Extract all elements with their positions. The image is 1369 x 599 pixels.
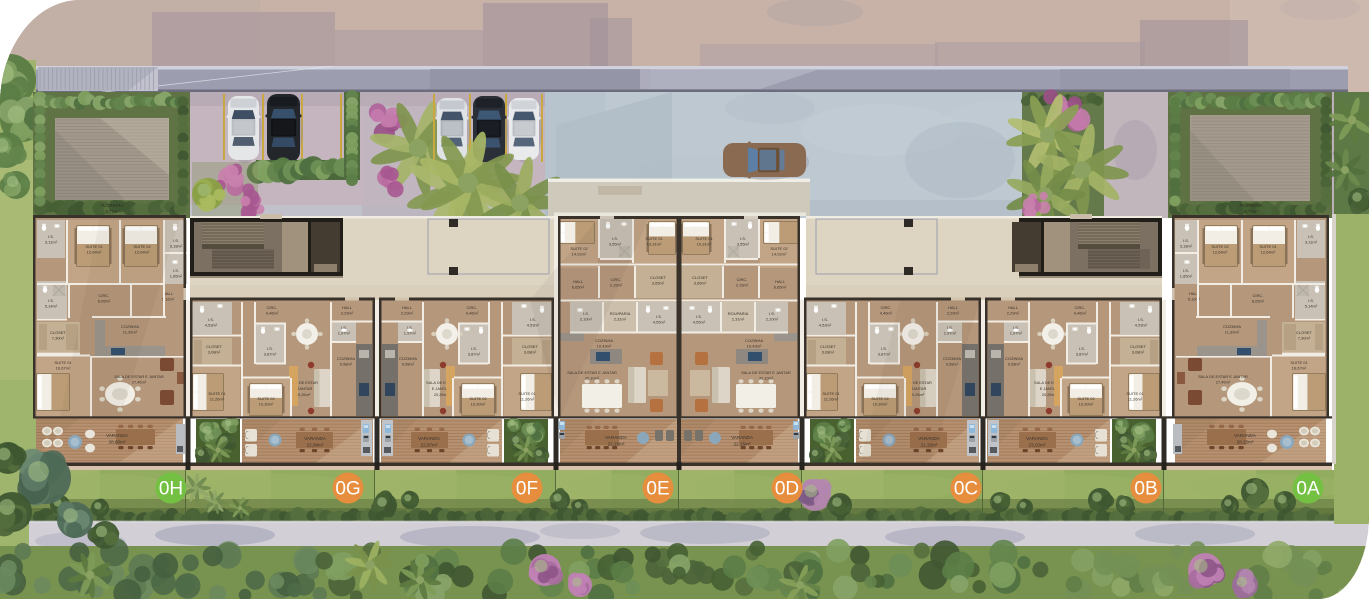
svg-text:CIRC.: CIRC. xyxy=(1253,293,1264,298)
svg-text:0E: 0E xyxy=(646,479,669,500)
svg-text:3,65m²: 3,65m² xyxy=(694,280,707,285)
svg-text:I.S.: I.S. xyxy=(267,346,273,351)
svg-text:10,43m²: 10,43m² xyxy=(747,343,762,348)
svg-text:9,58m²: 9,58m² xyxy=(340,361,353,366)
svg-text:11,39m²: 11,39m² xyxy=(1225,329,1240,334)
svg-text:SUITE 02: SUITE 02 xyxy=(1211,244,1229,249)
svg-text:I.S.: I.S. xyxy=(1079,346,1085,351)
svg-text:1,97m²: 1,97m² xyxy=(338,330,351,335)
svg-text:CIRC.: CIRC. xyxy=(881,305,892,310)
svg-text:VARANDA: VARANDA xyxy=(304,436,327,441)
svg-text:0A: 0A xyxy=(1296,479,1320,500)
svg-text:I.S.: I.S. xyxy=(740,236,746,241)
svg-text:3,87m²: 3,87m² xyxy=(468,351,481,356)
svg-text:16,67m²: 16,67m² xyxy=(56,365,71,370)
svg-text:I.S.: I.S. xyxy=(208,317,214,322)
svg-text:8,77m²: 8,77m² xyxy=(105,209,119,214)
svg-text:1,97m²: 1,97m² xyxy=(404,330,417,335)
svg-text:SUITE 01: SUITE 01 xyxy=(1259,244,1277,249)
svg-text:4,46m²: 4,46m² xyxy=(466,311,479,316)
svg-text:I.S.: I.S. xyxy=(1308,298,1314,303)
svg-text:0G: 0G xyxy=(335,479,360,500)
svg-text:SUITE 02: SUITE 02 xyxy=(257,396,275,401)
svg-text:I.S.: I.S. xyxy=(881,346,887,351)
svg-text:10,31m²: 10,31m² xyxy=(647,241,662,246)
svg-text:2,10m²: 2,10m² xyxy=(766,316,779,321)
svg-text:VARANDA: VARANDA xyxy=(1026,436,1049,441)
svg-text:HALL: HALL xyxy=(402,305,413,310)
svg-text:VARANDA: VARANDA xyxy=(1234,433,1257,438)
svg-text:CLOSET: CLOSET xyxy=(522,344,539,349)
svg-text:4,55m²: 4,55m² xyxy=(653,319,666,324)
svg-text:28,60m²: 28,60m² xyxy=(109,440,126,445)
svg-text:SUITE 01: SUITE 01 xyxy=(822,391,840,396)
svg-text:COZINHA: COZINHA xyxy=(745,338,763,343)
svg-text:CIRC.: CIRC. xyxy=(467,305,478,310)
svg-text:HALL: HALL xyxy=(342,305,353,310)
svg-text:4,53m²: 4,53m² xyxy=(205,322,218,327)
svg-text:4,46m²: 4,46m² xyxy=(880,311,893,316)
svg-text:2,15m²: 2,15m² xyxy=(736,282,749,287)
svg-text:4,53m²: 4,53m² xyxy=(819,322,832,327)
svg-text:27,45m²: 27,45m² xyxy=(132,380,147,385)
svg-text:VARANDA: VARANDA xyxy=(605,435,628,440)
svg-text:10,31m²: 10,31m² xyxy=(697,241,712,246)
svg-text:I.S.: I.S. xyxy=(1138,317,1144,322)
svg-text:SUITE 01: SUITE 01 xyxy=(54,360,72,365)
svg-text:ROUPARIA: ROUPARIA xyxy=(610,311,631,316)
svg-text:COZINHA: COZINHA xyxy=(399,356,417,361)
svg-text:I.S.: I.S. xyxy=(48,234,54,239)
svg-text:3,08m²: 3,08m² xyxy=(208,349,221,354)
svg-text:I.S.: I.S. xyxy=(471,346,477,351)
svg-text:VARANDA: VARANDA xyxy=(106,433,129,438)
svg-text:4,53m²: 4,53m² xyxy=(1135,322,1148,327)
svg-text:SUITE 02: SUITE 02 xyxy=(1077,396,1095,401)
svg-text:8,05m²: 8,05m² xyxy=(1252,298,1265,303)
svg-text:SUITE 02: SUITE 02 xyxy=(770,246,788,251)
svg-text:I.S.: I.S. xyxy=(656,314,662,319)
svg-text:CLOSET: CLOSET xyxy=(1296,330,1313,335)
svg-text:I.S.: I.S. xyxy=(769,311,775,316)
svg-text:SALA DE ESTAR E JANTAR: SALA DE ESTAR E JANTAR xyxy=(741,370,791,375)
svg-text:2,29m²: 2,29m² xyxy=(401,311,414,316)
svg-text:3,55m²: 3,55m² xyxy=(737,241,750,246)
svg-text:CLOSET: CLOSET xyxy=(1130,344,1147,349)
svg-text:COZINHA: COZINHA xyxy=(337,356,355,361)
svg-text:5,14m²: 5,14m² xyxy=(45,303,58,308)
svg-text:22,98m²: 22,98m² xyxy=(307,443,324,448)
svg-text:3,18m²: 3,18m² xyxy=(1180,243,1193,248)
svg-text:CIRC.: CIRC. xyxy=(737,277,748,282)
svg-text:3,11m²: 3,11m² xyxy=(45,239,58,244)
svg-text:4,46m²: 4,46m² xyxy=(266,311,279,316)
svg-text:3,11m²: 3,11m² xyxy=(1305,239,1318,244)
svg-text:3,08m²: 3,08m² xyxy=(1132,349,1145,354)
svg-text:I.S.: I.S. xyxy=(1183,268,1189,273)
svg-text:I.S.: I.S. xyxy=(48,298,54,303)
svg-text:COZINHA: COZINHA xyxy=(1223,324,1241,329)
svg-text:I.S.: I.S. xyxy=(173,238,179,243)
svg-text:I.S.: I.S. xyxy=(696,314,702,319)
svg-text:I.S.: I.S. xyxy=(341,325,347,330)
svg-text:I.S.: I.S. xyxy=(173,268,179,273)
svg-text:2,31m²: 2,31m² xyxy=(614,316,627,321)
svg-text:9,58m²: 9,58m² xyxy=(402,361,415,366)
svg-text:11,26m²: 11,26m² xyxy=(824,396,839,401)
svg-text:10,30m²: 10,30m² xyxy=(259,401,274,406)
svg-text:2,29m²: 2,29m² xyxy=(341,311,354,316)
svg-text:COZINHA: COZINHA xyxy=(1005,356,1023,361)
svg-text:0F: 0F xyxy=(516,479,538,500)
svg-text:1,85m²: 1,85m² xyxy=(170,273,183,278)
svg-text:CLOSET: CLOSET xyxy=(650,275,667,280)
svg-text:I.S.: I.S. xyxy=(407,325,413,330)
svg-text:CLOSET: CLOSET xyxy=(820,344,837,349)
svg-text:VARANDA: VARANDA xyxy=(418,436,441,441)
svg-text:23,02m²: 23,02m² xyxy=(1029,443,1046,448)
svg-text:1,85m²: 1,85m² xyxy=(1180,273,1193,278)
svg-text:I.S.: I.S. xyxy=(1013,325,1019,330)
svg-text:11,26m²: 11,26m² xyxy=(210,396,225,401)
svg-text:SUITE 01: SUITE 01 xyxy=(695,236,713,241)
svg-text:12,64m²: 12,64m² xyxy=(1213,249,1228,254)
svg-text:14,02m²: 14,02m² xyxy=(772,251,787,256)
svg-text:10,30m²: 10,30m² xyxy=(471,401,486,406)
svg-text:CIRC.: CIRC. xyxy=(1075,305,1086,310)
svg-text:5,14m²: 5,14m² xyxy=(1305,303,1318,308)
svg-text:1,97m²: 1,97m² xyxy=(1010,330,1023,335)
svg-text:0C: 0C xyxy=(954,479,978,500)
svg-text:7,30m²: 7,30m² xyxy=(52,335,65,340)
svg-text:6,65m²: 6,65m² xyxy=(774,284,787,289)
svg-text:4,55m²: 4,55m² xyxy=(693,319,706,324)
svg-text:12,64m²: 12,64m² xyxy=(1261,249,1276,254)
svg-text:SALA DE ESTAR E JANTAR: SALA DE ESTAR E JANTAR xyxy=(1198,374,1248,379)
svg-text:2,29m²: 2,29m² xyxy=(1007,311,1020,316)
svg-text:I.S.: I.S. xyxy=(822,317,828,322)
svg-text:0B: 0B xyxy=(1134,479,1157,500)
svg-text:SUITE 01: SUITE 01 xyxy=(1290,360,1308,365)
svg-text:3,87m²: 3,87m² xyxy=(264,351,277,356)
svg-text:0H: 0H xyxy=(159,479,183,500)
svg-text:2,31m²: 2,31m² xyxy=(732,316,745,321)
svg-text:11,26m²: 11,26m² xyxy=(520,396,535,401)
svg-text:20,26m²: 20,26m² xyxy=(296,392,311,397)
svg-text:3,65m²: 3,65m² xyxy=(652,280,665,285)
svg-text:SUITE 01: SUITE 01 xyxy=(645,236,663,241)
svg-text:HALL: HALL xyxy=(775,279,786,284)
svg-text:VARANDA: VARANDA xyxy=(731,435,754,440)
svg-text:4,46m²: 4,46m² xyxy=(1074,311,1087,316)
svg-text:3,08m²: 3,08m² xyxy=(822,349,835,354)
svg-text:22,97m²: 22,97m² xyxy=(421,443,438,448)
svg-text:22,15m²: 22,15m² xyxy=(734,442,751,447)
svg-text:SUITE 01: SUITE 01 xyxy=(208,391,226,396)
svg-text:ROUPARIA: ROUPARIA xyxy=(728,311,749,316)
svg-text:CIRC.: CIRC. xyxy=(267,305,278,310)
svg-text:CLOSET: CLOSET xyxy=(206,344,223,349)
svg-text:7,30m²: 7,30m² xyxy=(1298,335,1311,340)
svg-text:16,67m²: 16,67m² xyxy=(1292,365,1307,370)
svg-text:11,26m²: 11,26m² xyxy=(1128,396,1143,401)
svg-text:I.S.: I.S. xyxy=(1308,234,1314,239)
svg-text:FLOREIRA: FLOREIRA xyxy=(1240,203,1264,208)
svg-text:SUITE 01: SUITE 01 xyxy=(1126,391,1144,396)
svg-text:10,30m²: 10,30m² xyxy=(1079,401,1094,406)
svg-text:9,58m²: 9,58m² xyxy=(1008,361,1021,366)
svg-text:FLOREIRA: FLOREIRA xyxy=(101,203,125,208)
svg-text:CLOSET: CLOSET xyxy=(50,330,67,335)
svg-text:SUITE 01: SUITE 01 xyxy=(518,391,536,396)
svg-text:10,43m²: 10,43m² xyxy=(597,343,612,348)
svg-text:28,15m²: 28,15m² xyxy=(1237,440,1254,445)
svg-text:SUITE 02: SUITE 02 xyxy=(469,396,487,401)
svg-text:8,77m²: 8,77m² xyxy=(1244,209,1258,214)
svg-text:I.S.: I.S. xyxy=(1183,238,1189,243)
svg-text:22,15m²: 22,15m² xyxy=(608,442,625,447)
svg-text:3,87m²: 3,87m² xyxy=(1076,351,1089,356)
svg-text:COZINHA: COZINHA xyxy=(595,338,613,343)
svg-text:CLOSET: CLOSET xyxy=(692,275,709,280)
svg-text:27,45m²: 27,45m² xyxy=(1216,380,1231,385)
svg-text:3,08m²: 3,08m² xyxy=(524,349,537,354)
svg-text:HALL: HALL xyxy=(1008,305,1019,310)
svg-text:0D: 0D xyxy=(775,479,799,500)
